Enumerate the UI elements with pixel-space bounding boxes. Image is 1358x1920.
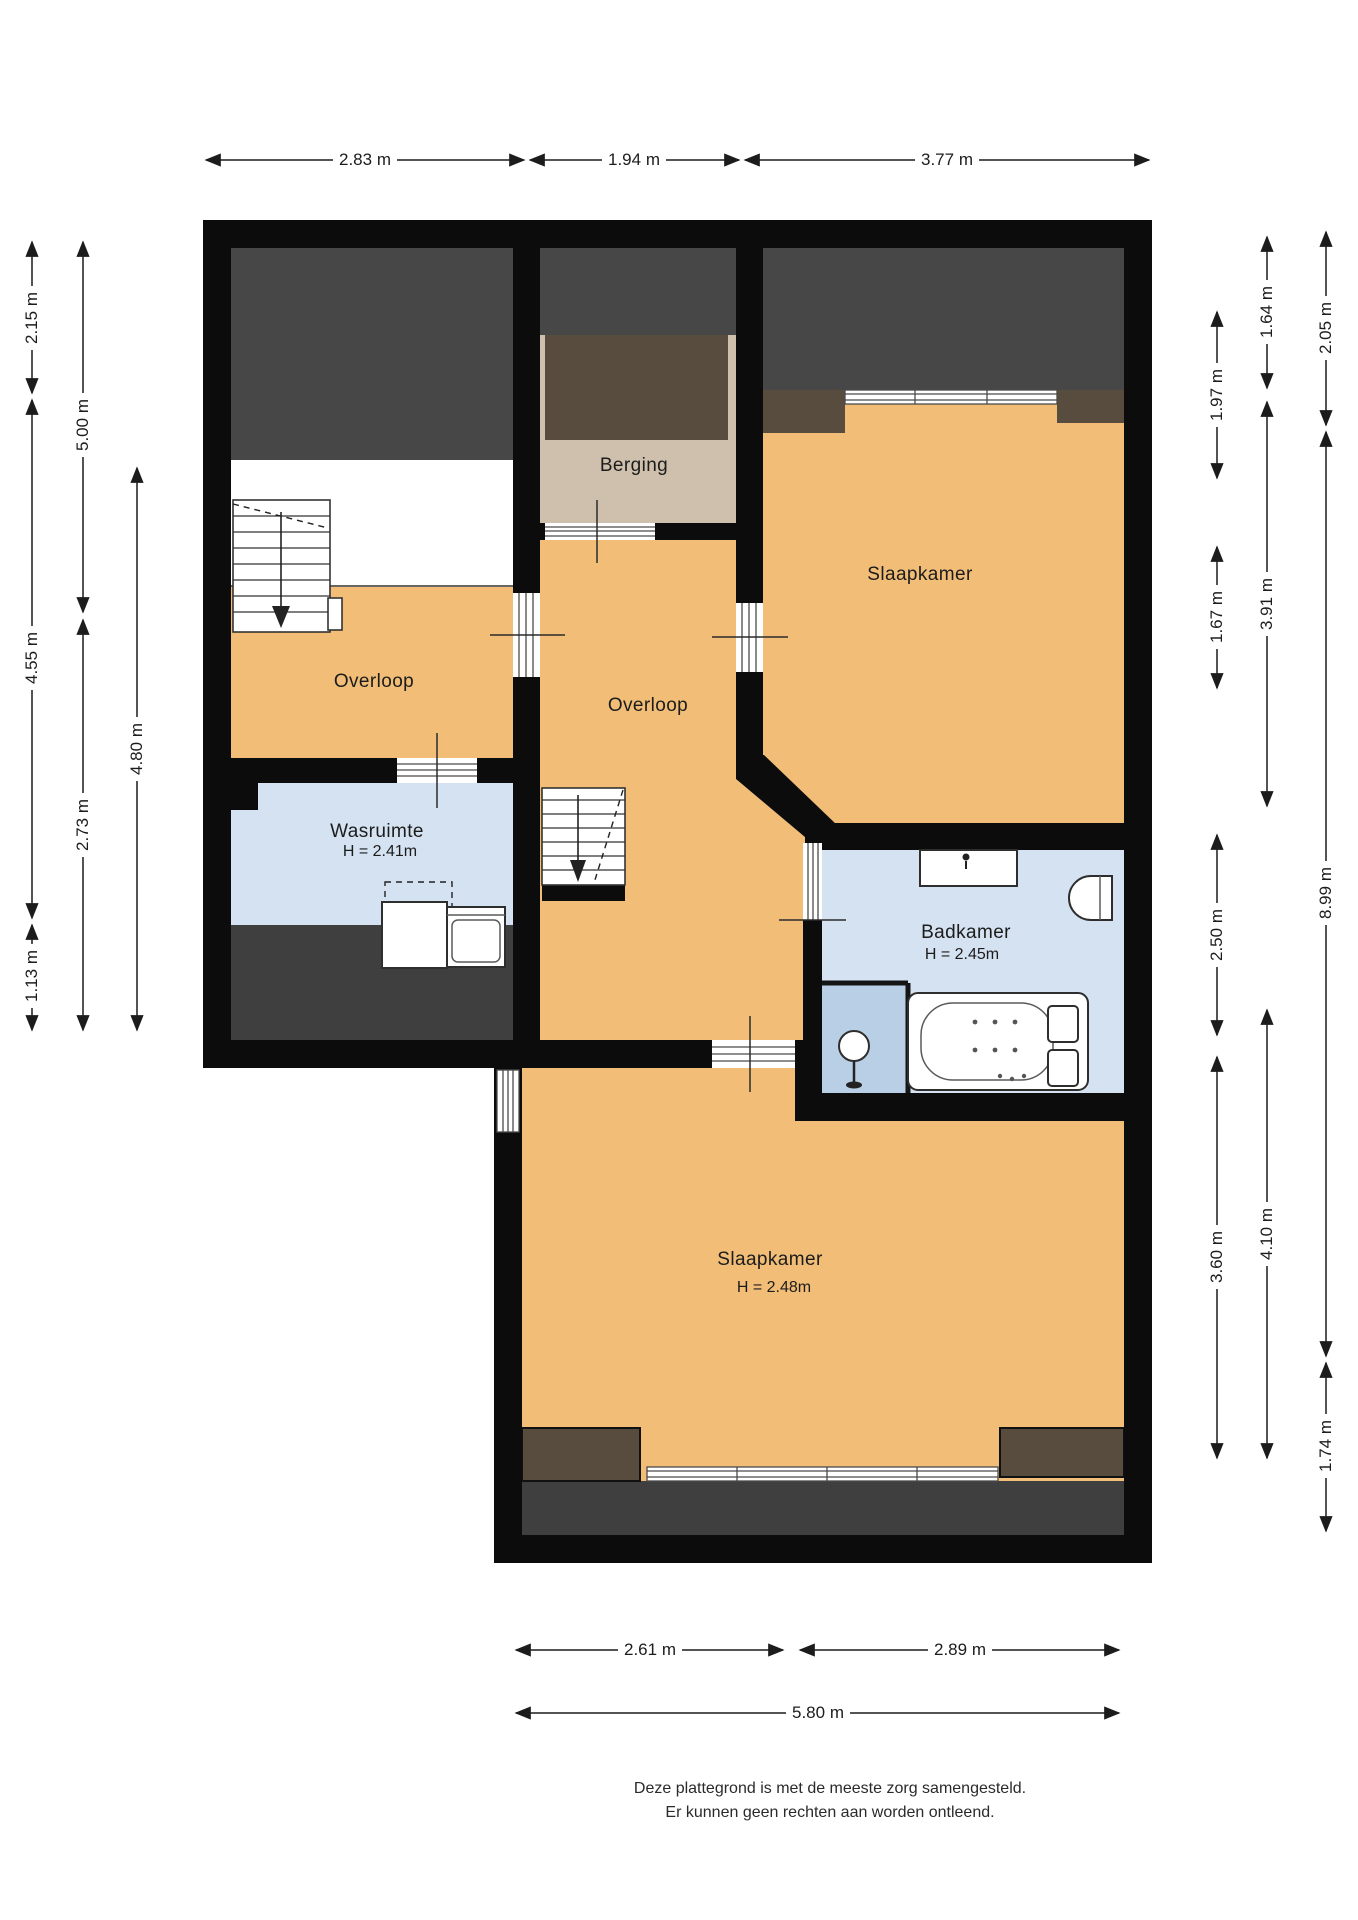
knee-wall-ledge-right xyxy=(1057,390,1124,423)
dimension-label: 1.67 m xyxy=(1207,585,1227,649)
floors xyxy=(231,248,1124,1535)
knee-wall-ledge-left xyxy=(763,390,845,433)
footer-disclaimer-line1: Deze plattegrond is met de meeste zorg s… xyxy=(634,1780,1026,1798)
room-label-badkamer: Badkamer xyxy=(921,922,1011,944)
dimension-label: 4.55 m xyxy=(22,626,42,690)
roof-slope-middle xyxy=(540,248,736,335)
room-height-wasruimte: H = 2.41m xyxy=(343,843,417,861)
dimension-label: 1.94 m xyxy=(602,150,666,170)
dimension-label: 4.10 m xyxy=(1257,1202,1277,1266)
dimension-label: 2.83 m xyxy=(333,150,397,170)
room-height-badkamer: H = 2.45m xyxy=(925,946,999,964)
dimension-label: 2.50 m xyxy=(1207,903,1227,967)
dormer-box-left xyxy=(522,1428,640,1481)
window xyxy=(497,1070,519,1132)
dimension-label: 1.74 m xyxy=(1316,1414,1336,1478)
dimension-label: 2.73 m xyxy=(73,793,93,857)
roof-slope-right xyxy=(763,248,1124,390)
vanity-icon xyxy=(920,850,1017,886)
dormer-box-right xyxy=(1000,1428,1124,1477)
sink-unit-icon xyxy=(447,907,505,967)
dimension-label: 2.15 m xyxy=(22,286,42,350)
staircase-secondary xyxy=(542,788,625,885)
washer-icon xyxy=(382,902,447,968)
window xyxy=(845,390,1057,404)
floorplan-page: Berging Overloop Overloop Wasruimte H = … xyxy=(0,0,1358,1920)
roof-slope-left xyxy=(231,248,513,460)
dimension-label: 3.77 m xyxy=(915,150,979,170)
window xyxy=(647,1467,998,1481)
staircase-main xyxy=(233,500,342,632)
room-slaapkamer-boven-floor xyxy=(763,404,1124,823)
dimension-label: 4.80 m xyxy=(127,717,147,781)
room-label-slaapkamer-beneden: Slaapkamer xyxy=(717,1249,822,1271)
berging-roof-block xyxy=(545,335,728,440)
room-label-wasruimte: Wasruimte xyxy=(330,821,424,843)
dimension-label: 5.80 m xyxy=(786,1703,850,1723)
dimension-label: 3.60 m xyxy=(1207,1225,1227,1289)
room-height-slaapkamer-beneden: H = 2.48m xyxy=(737,1279,811,1297)
dimension-label: 8.99 m xyxy=(1316,861,1336,925)
room-label-berging: Berging xyxy=(600,455,668,477)
room-label-overloop-left: Overloop xyxy=(334,671,414,693)
roof-band-bottom xyxy=(522,1481,1124,1535)
sink-icon xyxy=(1069,876,1112,920)
footer-disclaimer-line2: Er kunnen geen rechten aan worden ontlee… xyxy=(665,1804,994,1822)
room-label-slaapkamer-boven: Slaapkamer xyxy=(867,564,972,586)
dimension-label: 1.64 m xyxy=(1257,280,1277,344)
dimension-label: 2.05 m xyxy=(1316,296,1336,360)
room-label-overloop-middle: Overloop xyxy=(608,695,688,717)
dimension-label: 5.00 m xyxy=(73,393,93,457)
bathtub-icon xyxy=(908,993,1088,1090)
dimension-label: 2.61 m xyxy=(618,1640,682,1660)
dimension-label: 3.91 m xyxy=(1257,572,1277,636)
floorplan-drawing xyxy=(0,0,1358,1920)
dimension-label: 1.13 m xyxy=(22,944,42,1008)
dimension-label: 2.89 m xyxy=(928,1640,992,1660)
dimension-label: 1.97 m xyxy=(1207,363,1227,427)
